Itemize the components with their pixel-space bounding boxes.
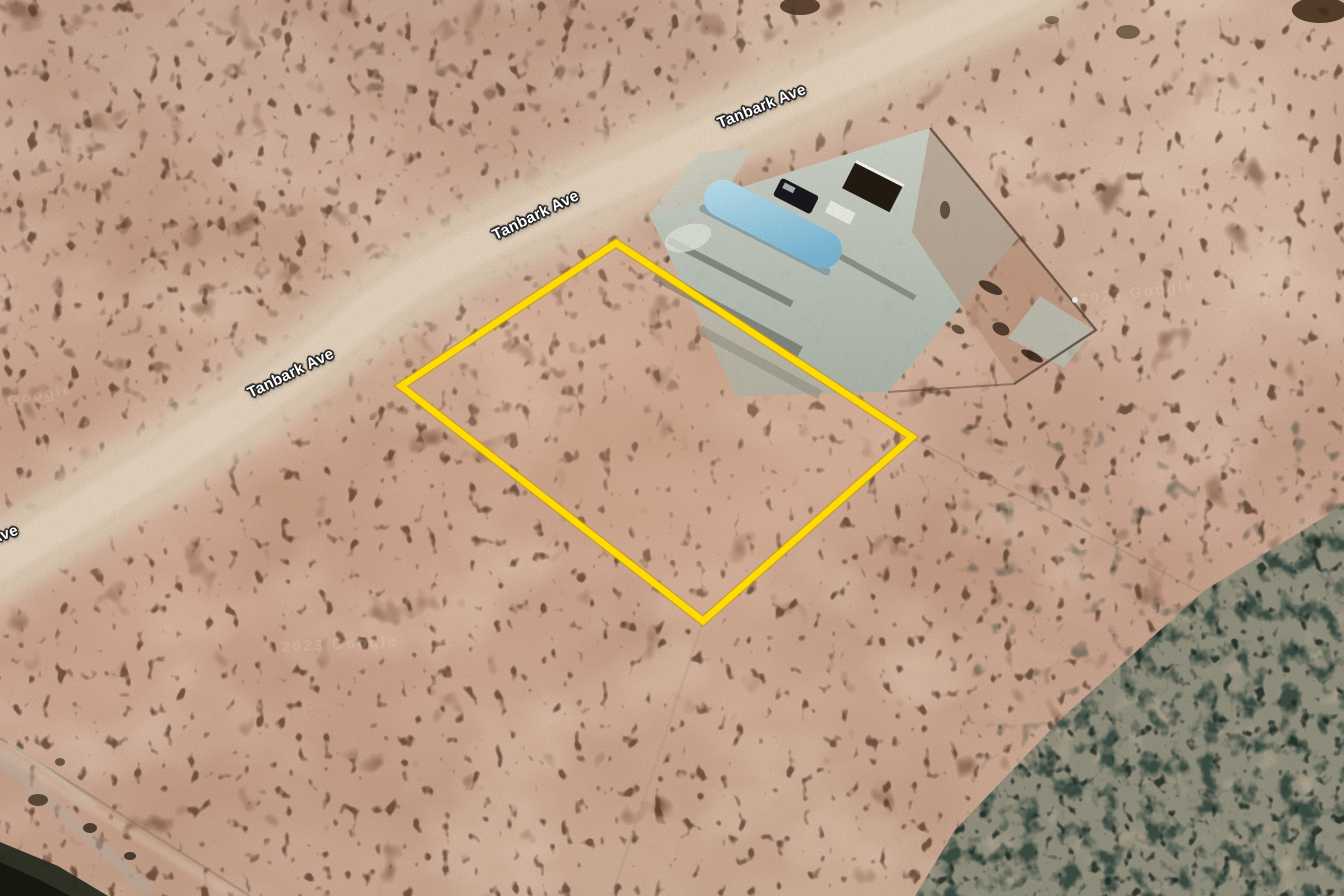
map-imagery bbox=[0, 0, 1344, 896]
satellite-map-view[interactable]: Tanbark AveTanbark AveTanbark AveTanbark… bbox=[0, 0, 1344, 896]
